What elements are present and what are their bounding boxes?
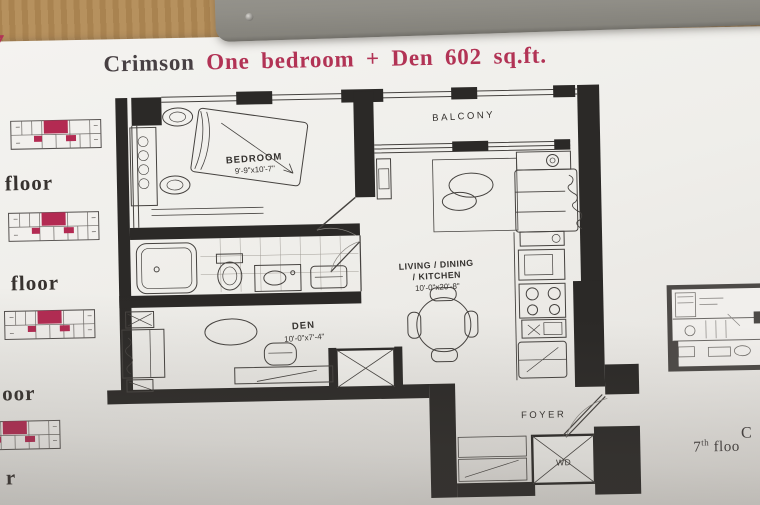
bathroom (136, 235, 361, 295)
keyplan-thumbnail-4 (0, 414, 61, 456)
den-furniture (122, 307, 396, 392)
mini-plan-floor-rest: floo (709, 439, 740, 456)
keyplan-floor-label-2: floor (11, 270, 60, 296)
mini-unit-plan (665, 283, 760, 381)
keyplan-floor-label-3: oor (2, 381, 36, 407)
living-dims: 10'-0"x20'-8" (415, 282, 460, 293)
plan-title-name: Crimson (103, 50, 195, 77)
keyplan-thumbnail-3 (3, 306, 96, 344)
mini-plan-floor-label: 7th floo (693, 437, 740, 457)
living-label-line2: / KITCHEN (412, 269, 461, 282)
floorplan-photo: 7 Crimson One bedroom + Den 602 sq.ft. f… (0, 0, 760, 505)
keyplan-floor-label-1: floor (5, 170, 54, 196)
mini-plan-floor-sup: th (701, 437, 709, 447)
keyplan-thumbnail-2 (7, 208, 100, 246)
floorplan-sheet: 7 Crimson One bedroom + Den 602 sq.ft. f… (0, 25, 760, 505)
living-label-line1: LIVING / DINING (398, 258, 473, 272)
foyer-label: FOYER (521, 409, 566, 421)
foyer-area (457, 394, 609, 485)
main-floorplan: BEDROOM 9'-9"x10'-7" BALCONY LIVING / DI… (101, 77, 669, 505)
laptop-screw (245, 13, 253, 21)
keyplan-thumbnail-1 (10, 115, 103, 153)
den-label: DEN (292, 320, 316, 333)
next-page-title-fragment: C (741, 425, 752, 443)
laundry-label: WD (556, 457, 571, 467)
plan-title: Crimson One bedroom + Den 602 sq.ft. (103, 39, 723, 77)
bedroom-dims: 9'-9"x10'-7" (234, 164, 275, 176)
balcony-label: BALCONY (432, 110, 495, 124)
den-dims: 10'-0"x7'-4" (284, 332, 325, 344)
page-corner-fragment: 7 (0, 29, 3, 61)
plan-title-subtitle: One bedroom + Den 602 sq.ft. (206, 43, 547, 75)
keyplan-floor-label-4: r (6, 465, 17, 490)
